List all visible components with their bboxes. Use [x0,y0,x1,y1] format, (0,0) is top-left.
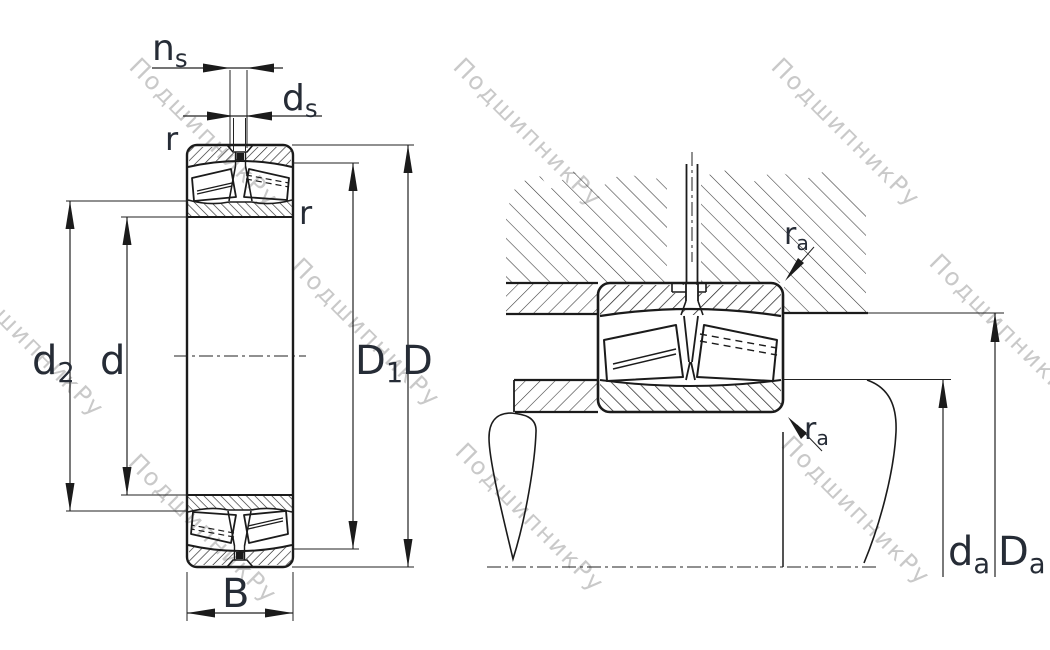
outer-ring-abutment [506,284,598,314]
bearing-technical-drawing: ПодшипникРу ПодшипникРу ПодшипникРу Подш… [0,0,1050,650]
label-B: B [222,571,249,617]
watermark-layer: ПодшипникРу ПодшипникРу ПодшипникРу Подш… [0,52,1050,609]
drawing-canvas: ПодшипникРу ПодшипникРу ПодшипникРу Подш… [0,0,1050,650]
lubrication-hole [687,152,698,283]
label-r-side: r [299,194,313,232]
mounted-bearing-section [598,283,783,412]
label-d: d [100,338,125,384]
label-r-top: r [165,120,179,158]
label-da: da [948,529,990,580]
label-Da: Da [998,529,1045,580]
bearing-front-view [174,145,306,567]
watermark-text: ПодшипникРу [286,252,447,413]
label-d2: d2 [32,338,75,389]
label-ra-bottom: ra [804,412,829,450]
label-ds: ds [282,78,318,123]
label-ns: ns [152,28,188,73]
dimension-B: B [187,571,293,621]
watermark-text: ПодшипникРу [450,437,611,598]
label-D: D [402,338,433,384]
watermark-text: ПодшипникРу [123,448,284,609]
